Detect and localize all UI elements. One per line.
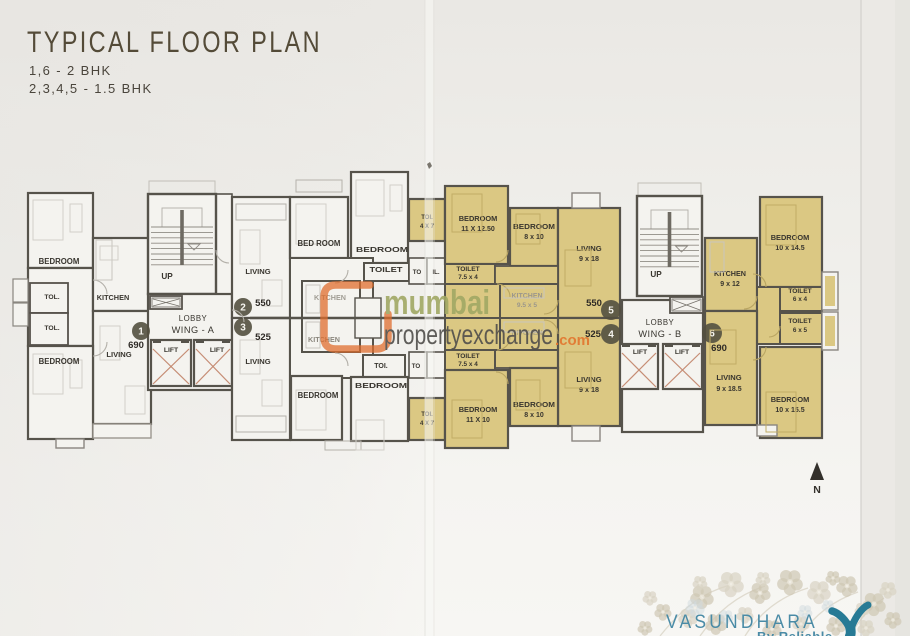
svg-text:BEDROOM: BEDROOM [356,245,408,254]
svg-text:7.5 x 4: 7.5 x 4 [458,361,478,368]
svg-text:LIFT: LIFT [633,349,648,356]
svg-text:UP: UP [161,272,173,281]
svg-text:BEDROOM: BEDROOM [771,233,810,242]
svg-text:TOILET: TOILET [370,267,404,274]
svg-text:550: 550 [255,298,271,309]
svg-text:11 X 10: 11 X 10 [466,417,490,424]
svg-text:525: 525 [255,332,272,343]
svg-text:2: 2 [240,303,246,314]
svg-text:9.5 x 5: 9.5 x 5 [517,302,537,309]
svg-text:BED ROOM: BED ROOM [298,239,341,248]
svg-text:TOILET: TOILET [788,318,811,325]
svg-text:BEDROOM: BEDROOM [513,224,555,231]
svg-text:TOILET: TOILET [456,266,479,273]
svg-text:BEDROOM: BEDROOM [355,381,407,390]
svg-text:TOILET: TOILET [788,288,811,295]
svg-text:LIVING: LIVING [576,375,601,384]
svg-text:8 x 10: 8 x 10 [524,234,544,241]
svg-text:KITCHEN: KITCHEN [511,293,542,300]
svg-text:LIVING: LIVING [716,373,741,382]
svg-text:LIFT: LIFT [210,347,225,354]
svg-text:BEDROOM: BEDROOM [459,405,498,414]
svg-text:LIFT: LIFT [675,349,690,356]
svg-text:LIVING: LIVING [576,244,601,253]
svg-text:BEDROOM: BEDROOM [459,214,498,223]
svg-text:mumbai: mumbai [384,284,490,322]
svg-text:BEDROOM: BEDROOM [513,402,555,409]
svg-text:LOBBY: LOBBY [179,314,208,323]
svg-text:690: 690 [711,343,727,354]
svg-text:550: 550 [586,298,602,309]
svg-text:5: 5 [608,306,614,317]
svg-text:BEDROOM: BEDROOM [771,395,810,404]
svg-text:690: 690 [128,340,144,351]
svg-text:KITCHEN: KITCHEN [714,269,746,278]
svg-text:6 x 5: 6 x 5 [793,327,808,334]
svg-text:LIFT: LIFT [164,347,179,354]
svg-text:7.5 x 4: 7.5 x 4 [458,274,478,281]
svg-text:TOI.: TOI. [374,363,388,370]
svg-text:By Reliable: By Reliable [757,629,833,636]
svg-text:LIVING: LIVING [245,267,270,276]
svg-text:TO: TO [412,363,421,370]
svg-text:9 x 18.5: 9 x 18.5 [716,386,741,393]
svg-text:1: 1 [138,327,144,338]
svg-text:WING - A: WING - A [172,325,215,335]
svg-text:9 x 18: 9 x 18 [579,385,599,394]
svg-text:UP: UP [650,270,662,279]
svg-text:LOBBY: LOBBY [646,318,675,327]
svg-text:.com: .com [555,332,590,349]
svg-text:TO: TO [413,269,422,276]
svg-text:TOILET: TOILET [456,353,479,360]
svg-text:TYPICAL FLOOR PLAN: TYPICAL FLOOR PLAN [27,26,322,59]
svg-text:4: 4 [608,330,614,341]
svg-text:9 x 18: 9 x 18 [579,254,599,263]
svg-text:3: 3 [240,323,246,334]
svg-text:9 x 12: 9 x 12 [720,281,740,288]
svg-text:BEDROOM: BEDROOM [298,391,339,400]
svg-text:TOL.: TOL. [44,325,59,332]
svg-text:N: N [813,484,821,496]
svg-text:propertyexchange: propertyexchange [384,319,553,350]
svg-text:10 x 15.5: 10 x 15.5 [775,407,804,414]
svg-text:KITCHEN: KITCHEN [97,293,129,302]
svg-text:WING - B: WING - B [638,329,681,339]
svg-text:LIVING: LIVING [106,350,131,359]
svg-text:TOL.: TOL. [44,294,59,301]
svg-text:KITCHEN: KITCHEN [314,293,346,302]
svg-text:BEDROOM: BEDROOM [39,257,80,266]
svg-text:10 x 14.5: 10 x 14.5 [775,245,804,252]
svg-text:2,3,4,5 - 1.5 BHK: 2,3,4,5 - 1.5 BHK [29,81,153,96]
svg-text:8 x 10: 8 x 10 [524,412,544,419]
svg-text:1,6 - 2 BHK: 1,6 - 2 BHK [29,63,112,78]
svg-text:LIVING: LIVING [245,357,270,366]
svg-text:6 x 4: 6 x 4 [793,296,808,303]
svg-text:BEDROOM: BEDROOM [39,357,80,366]
